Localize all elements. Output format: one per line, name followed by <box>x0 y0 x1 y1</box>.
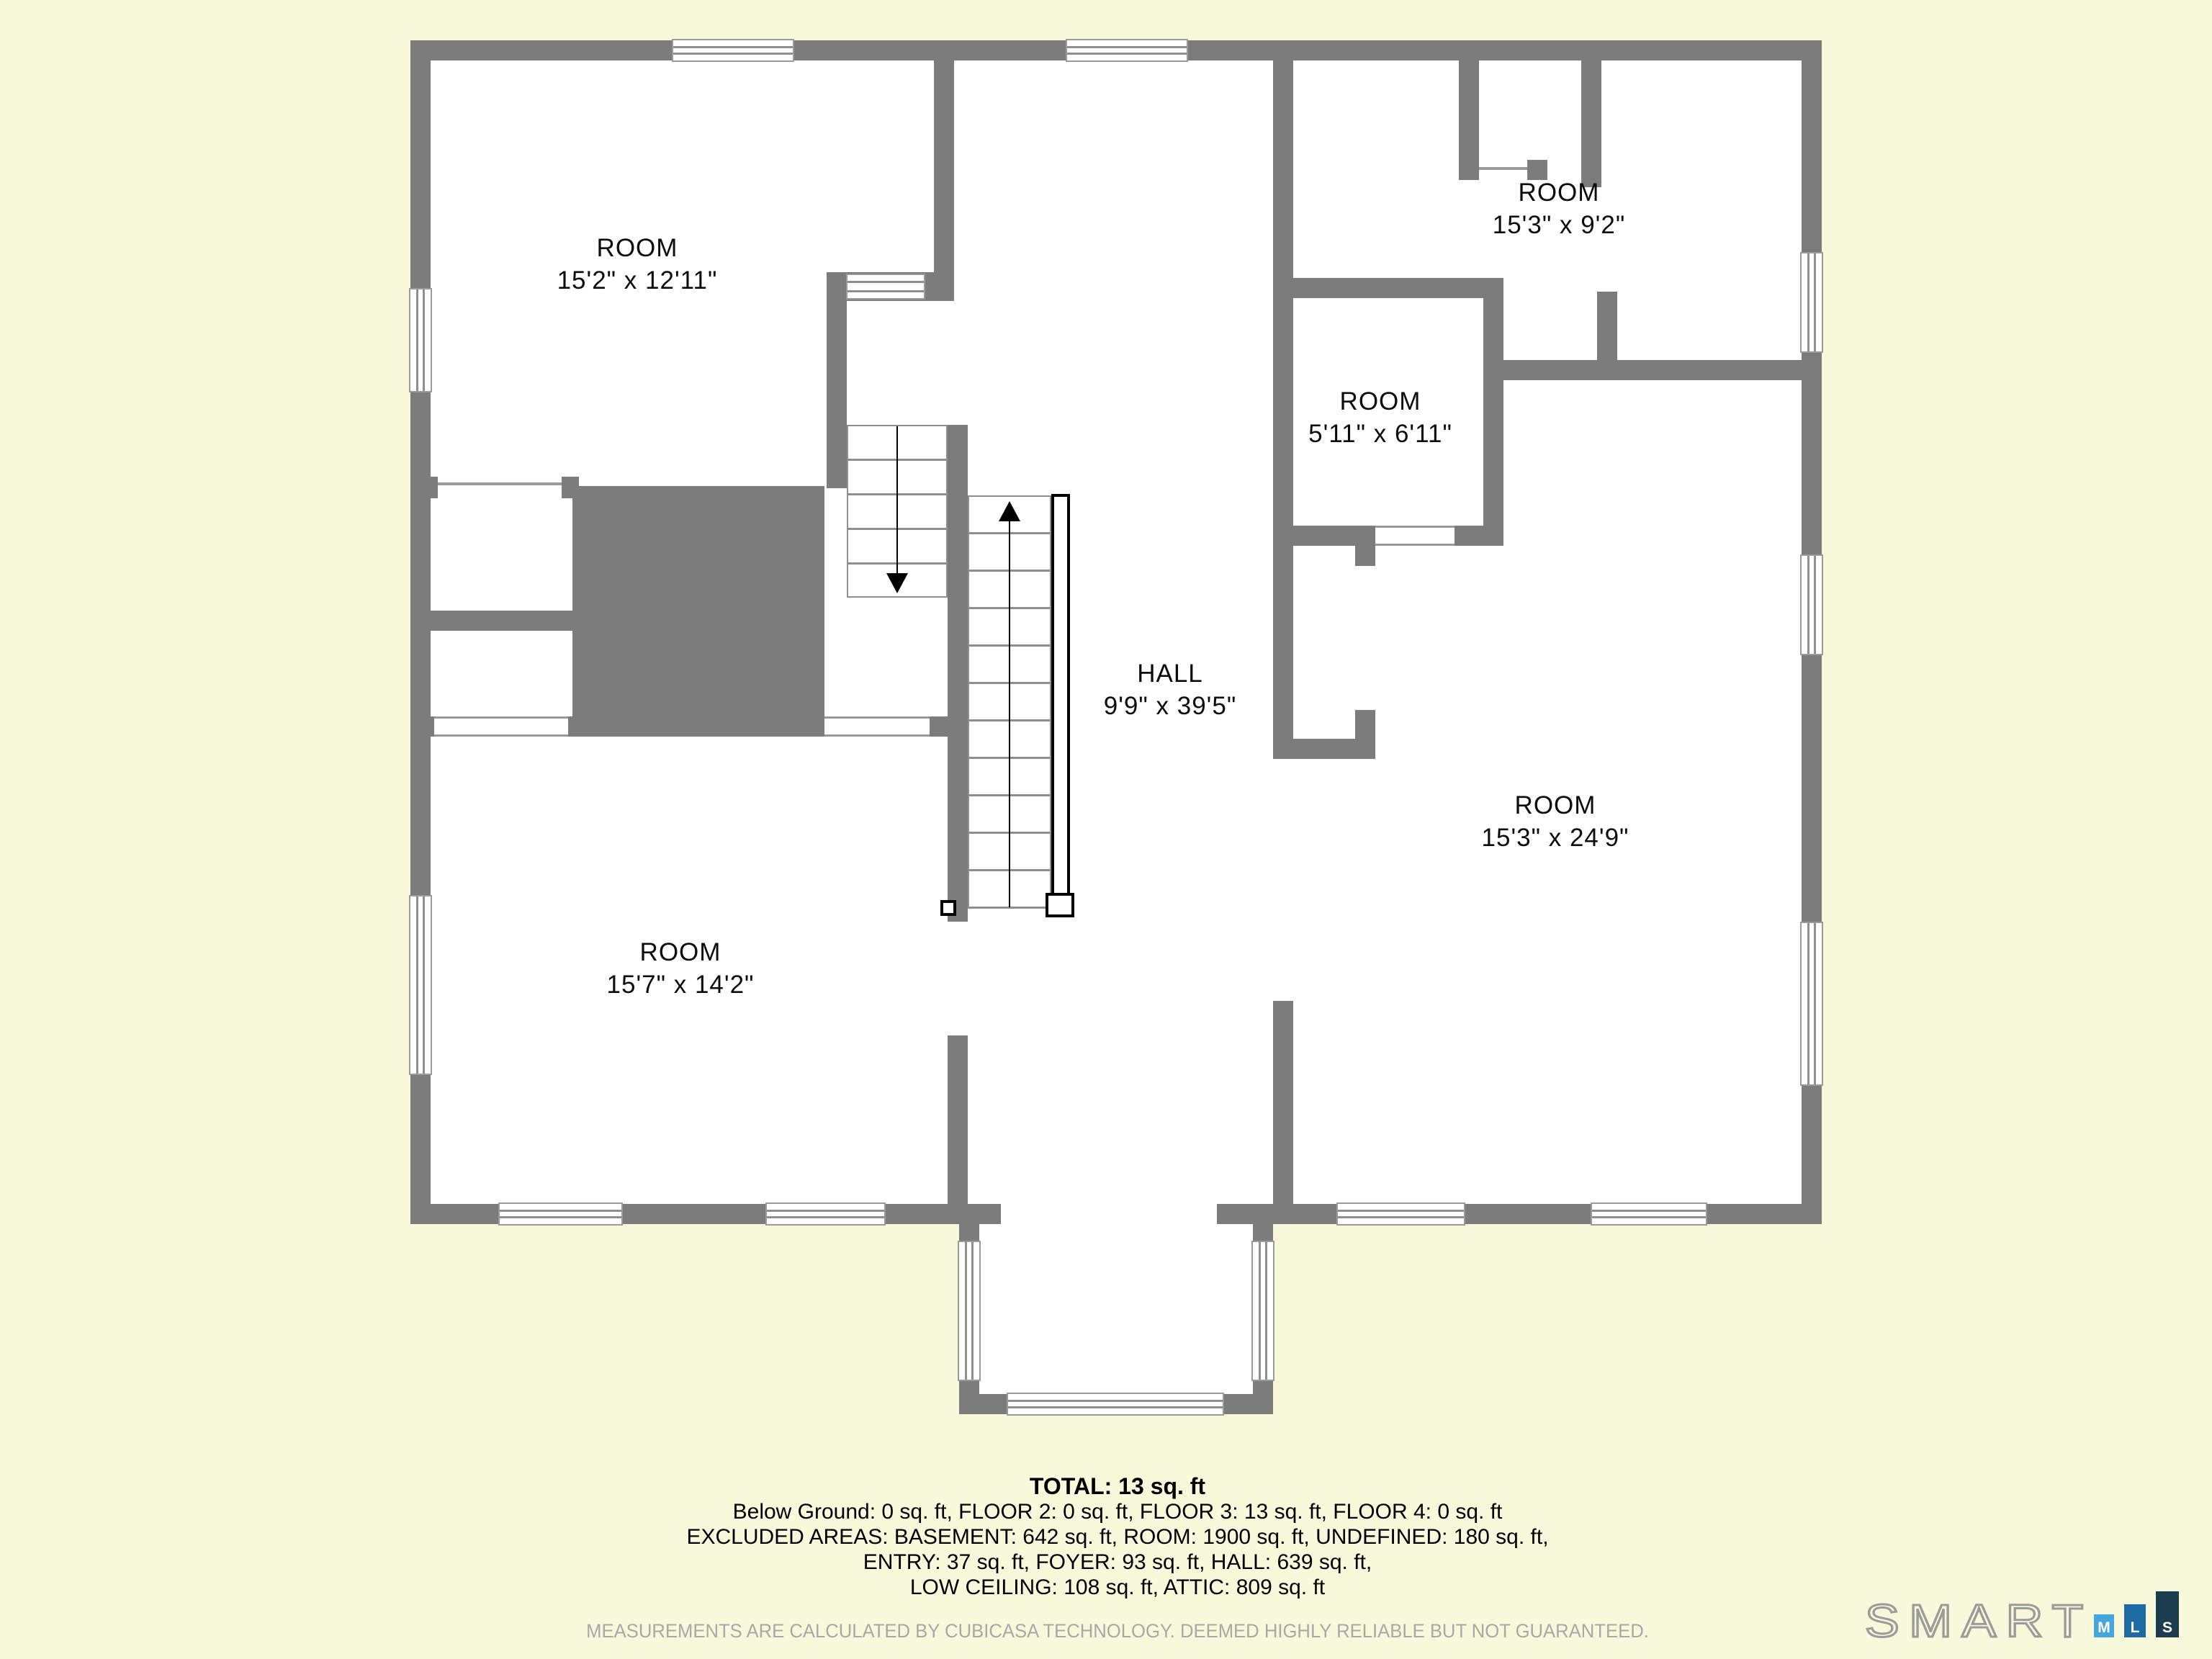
window-glass <box>416 289 425 391</box>
window-glass <box>500 1210 621 1218</box>
summary-line: EXCLUDED AREAS: BASEMENT: 642 sq. ft, RO… <box>541 1524 1694 1550</box>
wall <box>1355 710 1375 759</box>
logo-bar-l: L <box>2124 1604 2146 1637</box>
window <box>765 1202 886 1226</box>
stair-newel <box>940 900 956 916</box>
window <box>958 1241 981 1381</box>
porch-floor <box>979 1224 1253 1397</box>
window <box>1336 1202 1465 1226</box>
window-glass <box>1338 1210 1464 1218</box>
window <box>409 895 432 1075</box>
smartmls-logo: SMART M L S <box>1865 1584 2203 1656</box>
area-summary: TOTAL: 13 sq. ft Below Ground: 0 sq. ft,… <box>541 1473 1694 1600</box>
wall <box>1581 60 1601 187</box>
window <box>1800 922 1823 1086</box>
window-glass <box>1008 1400 1223 1408</box>
window <box>672 39 794 62</box>
stair-newel <box>1046 893 1074 917</box>
wall <box>1459 60 1479 180</box>
room-label-closet: ROOM 5'11" x 6'11" <box>1193 385 1568 450</box>
disclaimer-text: MEASUREMENTS ARE CALCULATED BY CUBICASA … <box>570 1620 1665 1642</box>
wall <box>410 611 572 631</box>
wall <box>1597 292 1617 360</box>
wall <box>827 301 847 488</box>
wall <box>1503 360 1802 380</box>
cased-opening <box>434 716 568 737</box>
room-dims: 15'7" x 14'2" <box>493 968 868 1001</box>
window-glass <box>1592 1210 1706 1218</box>
window <box>1251 1241 1274 1381</box>
window-glass <box>1259 1242 1267 1380</box>
room-label-hall: HALL 9'9" x 39'5" <box>983 657 1357 722</box>
wall <box>948 425 968 922</box>
wall <box>421 477 438 498</box>
window <box>1007 1393 1224 1416</box>
cased-opening <box>824 716 930 737</box>
void-block <box>572 486 824 729</box>
cased-opening <box>1375 526 1455 546</box>
wall <box>948 1035 968 1204</box>
opening-line <box>431 482 572 485</box>
logo-bar-m: M <box>2094 1614 2114 1637</box>
room-name: ROOM <box>450 232 824 264</box>
summary-line: ENTRY: 37 sq. ft, FOYER: 93 sq. ft, HALL… <box>541 1550 1694 1575</box>
summary-line: LOW CEILING: 108 sq. ft, ATTIC: 809 sq. … <box>541 1575 1694 1600</box>
door-opening <box>1001 1204 1217 1224</box>
window-glass <box>673 46 793 55</box>
window <box>1800 554 1823 655</box>
room-name: ROOM <box>1368 789 1743 822</box>
room-dims: 5'11" x 6'11" <box>1193 418 1568 450</box>
window-glass <box>1807 253 1816 351</box>
room-label-top-right: ROOM 15'3" x 9'2" <box>1372 176 1746 241</box>
wall <box>562 477 579 498</box>
wall <box>934 60 954 274</box>
logo-bar-letter: L <box>2131 1619 2140 1637</box>
smartmls-wordmark: SMART <box>1865 1594 2093 1647</box>
window <box>1066 39 1188 62</box>
window-glass <box>965 1242 974 1380</box>
stairs-down-line <box>896 426 898 575</box>
wall <box>1273 1001 1293 1204</box>
wall <box>1273 278 1503 298</box>
stairs-down-arrow-icon <box>886 573 908 593</box>
room-name: HALL <box>983 657 1357 690</box>
logo-bar-letter: S <box>2162 1619 2172 1637</box>
window-glass <box>1067 46 1187 55</box>
room-name: ROOM <box>1193 385 1568 418</box>
room-dims: 15'2" x 12'11" <box>450 264 824 297</box>
room-name: ROOM <box>1372 176 1746 209</box>
window-glass <box>767 1210 884 1218</box>
stairs-down <box>847 425 948 598</box>
room-dims: 15'3" x 9'2" <box>1372 209 1746 241</box>
window <box>498 1202 623 1226</box>
floor-plan: ROOM 15'2" x 12'11" ROOM 15'3" x 9'2" RO… <box>0 0 2212 1659</box>
window-glass <box>1807 556 1816 654</box>
room-label-bottom-left: ROOM 15'7" x 14'2" <box>493 936 868 1001</box>
room-label-top-left: ROOM 15'2" x 12'11" <box>450 232 824 297</box>
summary-total: TOTAL: 13 sq. ft <box>541 1473 1694 1499</box>
logo-bar-letter: M <box>2098 1619 2110 1637</box>
wall <box>1355 544 1375 566</box>
window-glass <box>848 281 924 292</box>
window <box>1591 1202 1707 1226</box>
window-glass <box>416 896 425 1074</box>
window <box>846 274 925 300</box>
summary-line: Below Ground: 0 sq. ft, FLOOR 2: 0 sq. f… <box>541 1499 1694 1524</box>
opening-line <box>1479 167 1527 170</box>
room-dims: 15'3" x 24'9" <box>1368 822 1743 854</box>
window <box>1800 252 1823 353</box>
room-label-right: ROOM 15'3" x 24'9" <box>1368 789 1743 854</box>
stairs-up-arrow-icon <box>999 501 1020 521</box>
room-name: ROOM <box>493 936 868 968</box>
window-glass <box>1807 923 1816 1084</box>
logo-bar-s: S <box>2156 1591 2179 1637</box>
window <box>409 288 432 392</box>
room-dims: 9'9" x 39'5" <box>983 690 1357 722</box>
